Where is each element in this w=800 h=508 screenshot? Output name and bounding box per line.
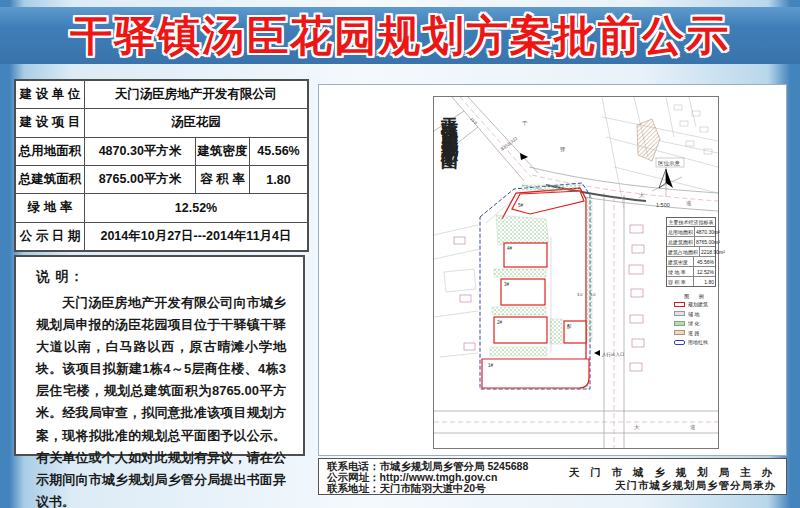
svg-text:驿: 驿: [559, 146, 566, 153]
banner: 干驿镇汤臣花园规划方案批前公示: [0, 7, 800, 64]
legend-swatch-paving: [674, 311, 685, 316]
contact-address: 联系地址：天门市陆羽大道中20号: [327, 483, 528, 494]
table-row: 总建筑面积 8765.00平方米 容 积 率 1.80: [16, 166, 307, 194]
row-value: 45.56%: [250, 138, 307, 165]
indicator-row: 总用地面积 4870.30m²: [667, 227, 715, 237]
legend-item: 规划建筑: [674, 301, 718, 307]
svg-text:道: 道: [686, 200, 692, 206]
row-value: 天门汤臣房地产开发有限公司: [85, 81, 307, 108]
pedestrian-entrance-arrow-icon: [594, 350, 600, 356]
map-title: 干驿镇汤臣花园规划总平面图: [441, 104, 458, 143]
row-label: 绿 地 率: [16, 194, 85, 221]
svg-text:1#: 1#: [488, 363, 494, 368]
organizer-host: 天 门 市 城 乡 规 划 局 主 办: [569, 466, 776, 479]
organizer-undertaker: 天门市城乡规划局乡管分局承办: [569, 479, 776, 492]
table-row: 绿 地 率 12.52%: [16, 194, 307, 222]
svg-text:15.0: 15.0: [469, 116, 478, 126]
explanation-body: 天门汤臣房地产开发有限公司向市城乡规划局申报的汤臣花园项目位于干驿镇干驿大道以南…: [36, 292, 286, 508]
row-label: 容 积 率: [196, 166, 250, 193]
legend-item: 绿 化: [674, 320, 718, 326]
row-label: 建 设 单 位: [16, 81, 85, 108]
row-label: 建筑密度: [196, 138, 250, 165]
svg-text:干: 干: [522, 120, 528, 126]
table-row: 建 设 项 目 汤臣花园: [16, 109, 307, 137]
svg-text:配: 配: [567, 324, 572, 329]
legend-item: 用地红线: [674, 339, 718, 345]
row-label: 总用地面积: [16, 138, 85, 165]
map-legend: 图 例 规划建筑 铺 地 绿 化 道 路: [674, 293, 718, 349]
legend-swatch-green: [674, 321, 685, 326]
legend-swatch-building: [674, 302, 685, 307]
project-info-table: 建 设 单 位 天门汤臣房地产开发有限公司 建 设 项 目 汤臣花园 总用地面积…: [14, 79, 309, 252]
indicator-table: 主要技术经济指标表 总用地面积 4870.30m² 总建筑面积 8765.00m…: [666, 217, 716, 287]
pedestrian-entrance-label: 人行出入口: [602, 352, 625, 357]
surrounding-parcels: [454, 225, 644, 371]
row-value: 1.80: [250, 166, 307, 193]
contact-info: 联系电话：市城乡规划局乡管分局 5245688 公示网址：http://www.…: [327, 461, 528, 492]
legend-swatch-road: [674, 330, 685, 335]
indicator-table-title: 主要技术经济指标表: [667, 218, 715, 227]
row-label: 建 设 项 目: [16, 109, 85, 136]
svg-text:大: 大: [639, 192, 645, 198]
indicator-row: 建筑占地面积 2218.90m²: [667, 247, 715, 257]
row-value: 2014年10月27日---2014年11月4日: [85, 223, 307, 250]
indicator-row: 容 积 率 1.80: [667, 277, 715, 286]
legend-swatch-redline: [674, 340, 685, 345]
location-label: 区位示意: [658, 160, 681, 166]
row-label: 公 示 日 期: [16, 223, 85, 250]
svg-text:道: 道: [690, 424, 696, 430]
vehicle-entrance-label: 车行出入口: [500, 136, 519, 152]
svg-text:2#: 2#: [497, 320, 503, 325]
indicator-row: 绿 地 率 12.52%: [667, 267, 715, 277]
row-label: 总建筑面积: [16, 166, 85, 193]
organizer-info: 天 门 市 城 乡 规 划 局 主 办 天门市城乡规划局乡管分局承办: [569, 461, 776, 492]
table-row: 公 示 日 期 2014年10月27日---2014年11月4日: [16, 223, 307, 250]
table-row: 建 设 单 位 天门汤臣房地产开发有限公司: [16, 81, 307, 109]
svg-text:5#: 5#: [518, 203, 524, 208]
explanation-box: 说 明： 天门汤臣房地产开发有限公司向市城乡规划局申报的汤臣花园项目位于干驿镇干…: [14, 255, 305, 456]
svg-text:6.0: 6.0: [590, 292, 596, 297]
svg-text:3#: 3#: [504, 282, 510, 287]
row-value: 8765.00平方米: [85, 166, 196, 193]
building-1: [482, 359, 589, 388]
table-row: 总用地面积 4870.30平方米 建筑密度 45.56%: [16, 138, 307, 166]
svg-text:大: 大: [634, 424, 640, 430]
page-title: 干驿镇汤臣花园规划方案批前公示: [70, 8, 730, 64]
site-plan-frame: 区位示意 1:500: [433, 96, 719, 449]
scale-label: 1:500: [656, 202, 670, 208]
row-value: 12.52%: [85, 194, 307, 221]
location-minimap: [602, 97, 718, 209]
legend-item: 铺 地: [674, 311, 718, 317]
svg-text:4#: 4#: [507, 246, 513, 251]
notice-poster: 干驿镇汤臣花园规划方案批前公示 建 设 单 位 天门汤臣房地产开发有限公司 建 …: [0, 0, 800, 508]
contact-footer: 联系电话：市城乡规划局乡管分局 5245688 公示网址：http://www.…: [318, 458, 787, 495]
indicator-row: 建筑密度 45.56%: [667, 257, 715, 267]
row-value: 4870.30平方米: [85, 138, 196, 165]
left-parcels: [434, 225, 480, 357]
row-value: 汤臣花园: [85, 109, 307, 136]
north-arrow-icon: [652, 167, 682, 197]
minimap-site-hatch: [637, 119, 660, 161]
explanation-heading: 说 明：: [36, 268, 286, 286]
legend-item: 道 路: [674, 330, 718, 336]
svg-text:3.0: 3.0: [577, 292, 583, 297]
indicator-row: 总建筑面积 8765.00m²: [667, 237, 715, 247]
site-plan-panel: 区位示意 1:500: [318, 84, 787, 456]
legend-title: 图 例: [674, 293, 718, 299]
vehicle-entrance-arrow-icon: [520, 153, 528, 160]
